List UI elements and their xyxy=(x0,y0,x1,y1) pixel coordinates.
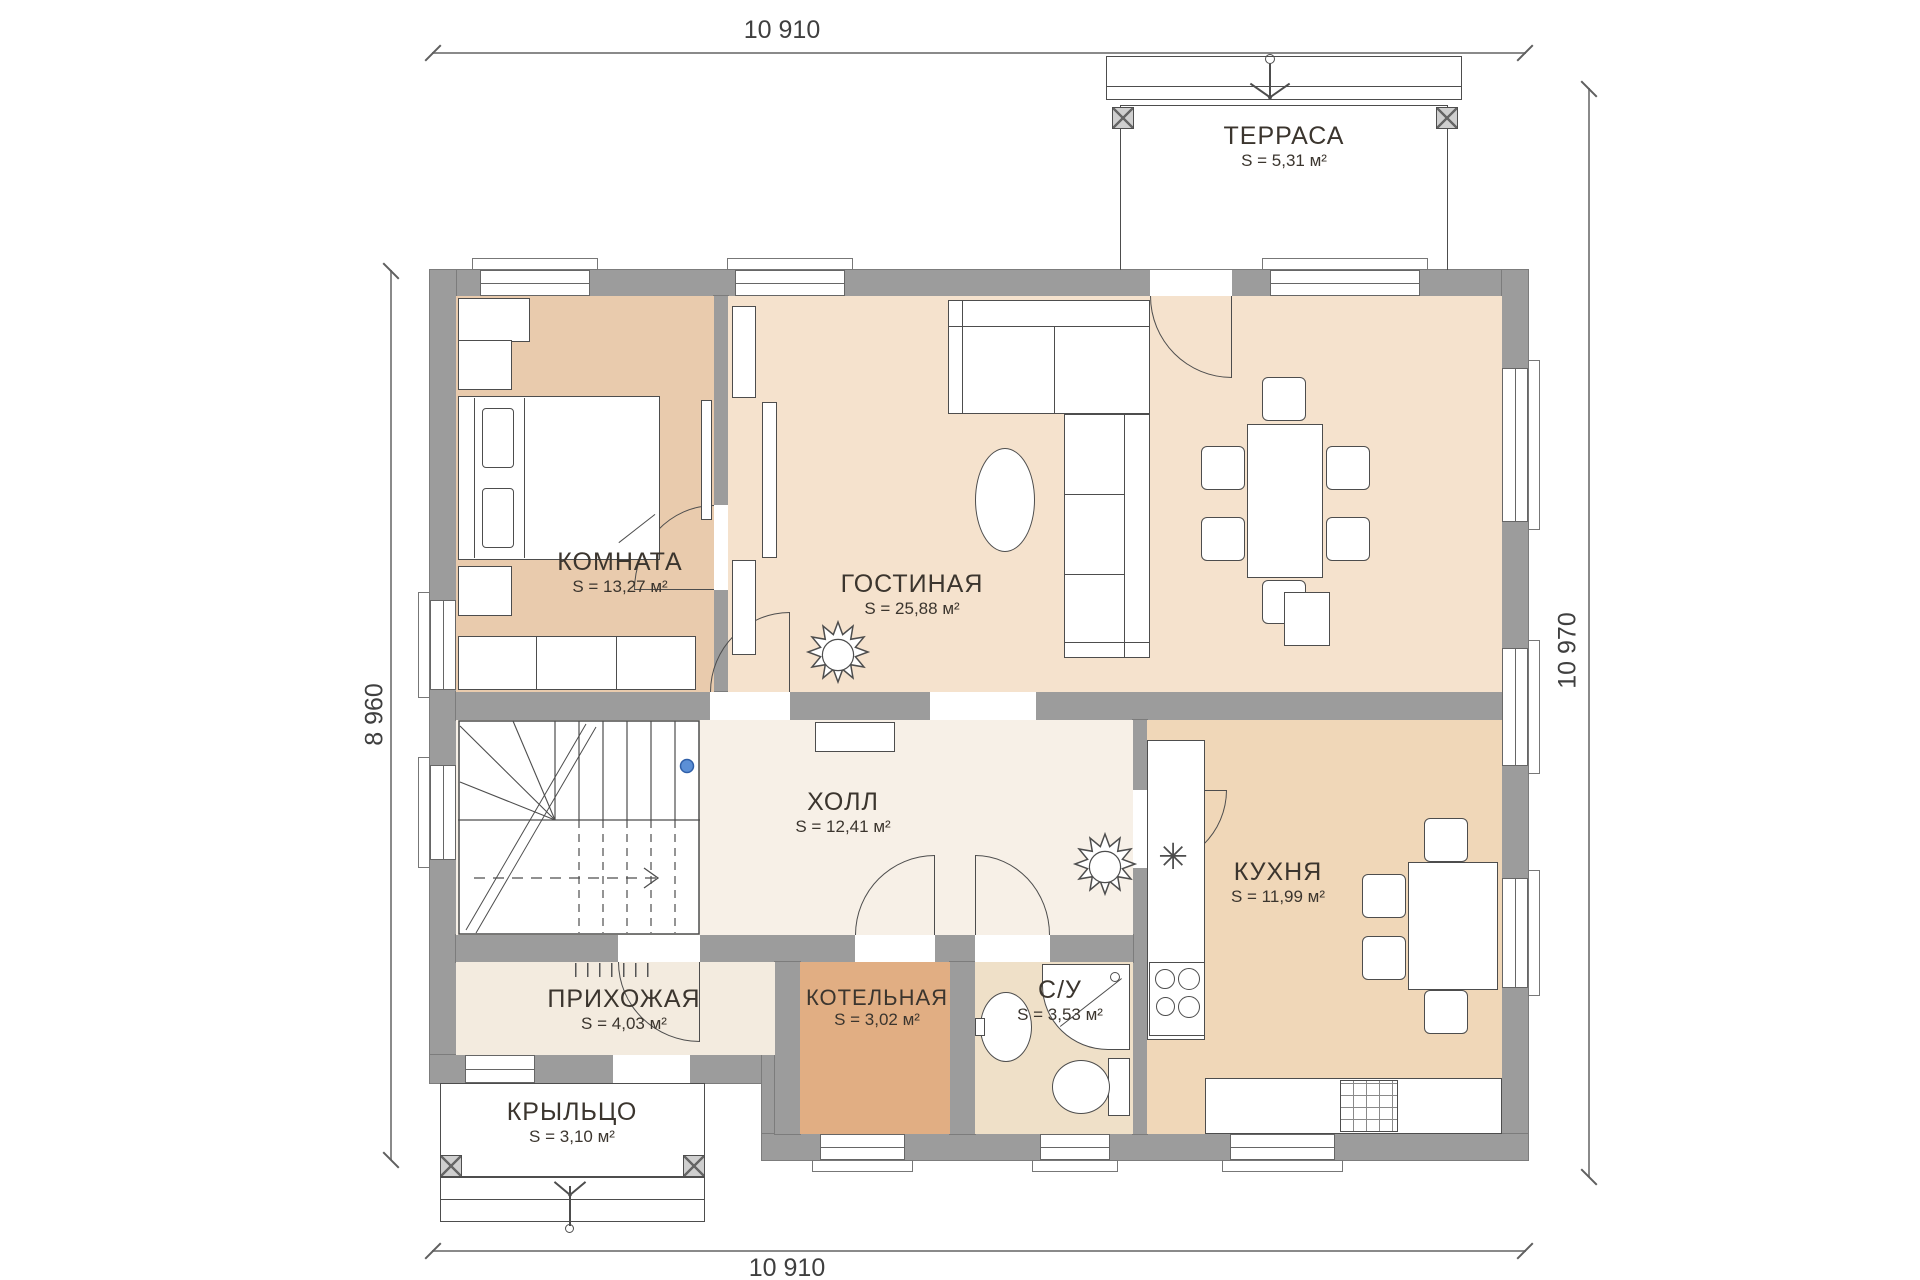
plant-icon xyxy=(808,622,868,682)
washbasin-tap xyxy=(975,1018,985,1036)
window-sill xyxy=(418,757,430,868)
room-area: S = 11,99 м² xyxy=(1231,887,1325,907)
door-opening-bath xyxy=(975,935,1050,962)
chair xyxy=(1326,446,1370,490)
window xyxy=(430,765,456,860)
chair xyxy=(1424,990,1468,1034)
door-opening-boiler xyxy=(855,935,935,962)
room-label-bath: С/У S = 3,53 м² xyxy=(1017,976,1103,1024)
coffee-table xyxy=(975,448,1035,552)
dimension-line-left xyxy=(390,270,392,1160)
sofa-line xyxy=(1124,414,1125,658)
window xyxy=(465,1055,535,1083)
sofa-corner-top xyxy=(948,300,1150,414)
window xyxy=(1040,1134,1110,1160)
tv-cabinet xyxy=(732,560,756,655)
porch-post xyxy=(440,1155,462,1177)
dimension-label-top: 10 910 xyxy=(712,16,852,45)
porch-step-line xyxy=(440,1199,705,1200)
chair xyxy=(1262,377,1306,421)
window xyxy=(480,270,590,296)
chair xyxy=(1362,936,1406,980)
room-area: S = 3,53 м² xyxy=(1017,1005,1103,1025)
dimension-line-top xyxy=(432,52,1526,54)
toilet-tank xyxy=(1108,1058,1130,1116)
sofa-line xyxy=(1064,574,1124,575)
tv-panel xyxy=(701,400,712,520)
kitchen-table xyxy=(1408,862,1498,990)
wardrobe xyxy=(458,636,696,690)
room-area: S = 12,41 м² xyxy=(795,817,890,837)
sofa-corner-side xyxy=(1064,414,1150,658)
room-area: S = 3,02 м² xyxy=(806,1010,948,1030)
room-name: КУХНЯ xyxy=(1231,858,1325,887)
room-label-entry: ПРИХОЖАЯ S = 4,03 м² xyxy=(547,985,700,1033)
plant-icon xyxy=(1075,834,1135,894)
toilet-bowl xyxy=(1052,1060,1110,1114)
nightstand xyxy=(458,340,512,390)
window-sill xyxy=(1222,1160,1343,1172)
chair xyxy=(1201,517,1245,561)
room-name: КОТЕЛЬНАЯ xyxy=(806,985,948,1010)
tv-panel xyxy=(762,402,777,558)
window-sill xyxy=(812,1160,913,1172)
terrace-post xyxy=(1112,107,1134,129)
window-sill xyxy=(472,258,598,270)
window xyxy=(820,1134,905,1160)
room-label-boiler: КОТЕЛЬНАЯ S = 3,02 м² xyxy=(806,985,948,1030)
chair xyxy=(1424,818,1468,862)
wardrobe-divider xyxy=(536,636,537,690)
doormat xyxy=(575,963,651,977)
sofa-line xyxy=(948,326,1150,327)
slope-arrow-icon xyxy=(1265,54,1275,64)
terrace-roof xyxy=(1106,56,1462,100)
sideboard xyxy=(1284,592,1330,646)
nightstand xyxy=(458,566,512,616)
door-opening-bedroom xyxy=(714,505,728,590)
room-name: ХОЛЛ xyxy=(795,788,890,817)
appliance xyxy=(1340,1080,1398,1132)
room-label-kitchen: КУХНЯ S = 11,99 м² xyxy=(1231,858,1325,906)
wall-bedroom-living xyxy=(714,296,728,692)
window xyxy=(1502,878,1528,988)
window-sill xyxy=(1528,870,1540,996)
room-area: S = 3,10 м² xyxy=(507,1127,638,1147)
sofa-line xyxy=(962,300,963,414)
window-sill xyxy=(418,592,430,698)
floor-plan: 10 910 10 910 8 960 10 970 xyxy=(0,0,1920,1280)
closet xyxy=(458,298,530,342)
wall-entry-boiler xyxy=(775,962,800,1134)
window xyxy=(735,270,845,296)
chair xyxy=(1362,874,1406,918)
dimension-line-right xyxy=(1588,88,1590,1177)
window xyxy=(1230,1134,1335,1160)
window-sill xyxy=(1032,1160,1118,1172)
staircase xyxy=(458,720,700,935)
porch-post xyxy=(683,1155,705,1177)
sofa-line xyxy=(1054,326,1055,414)
entry-arrow-origin xyxy=(565,1224,574,1233)
window xyxy=(1502,648,1528,766)
bed-pillow xyxy=(482,488,514,548)
dimension-label-right: 10 970 xyxy=(1554,606,1583,696)
stove xyxy=(1149,962,1205,1036)
window-sill xyxy=(1528,360,1540,530)
sofa-line xyxy=(1064,494,1124,495)
tv-cabinet xyxy=(732,306,756,398)
sofa-line xyxy=(1064,642,1150,643)
room-area: S = 5,31 м² xyxy=(1224,151,1345,171)
terrace-post xyxy=(1436,107,1458,129)
room-label-hall: ХОЛЛ S = 12,41 м² xyxy=(795,788,890,836)
room-area: S = 4,03 м² xyxy=(547,1014,700,1034)
room-name: КОМНАТА xyxy=(557,548,682,577)
window xyxy=(1502,368,1528,522)
window xyxy=(430,600,456,690)
room-area: S = 25,88 м² xyxy=(841,599,984,619)
room-label-bedroom: КОМНАТА S = 13,27 м² xyxy=(557,548,682,596)
wall-hall-kitchen xyxy=(1133,720,1147,1134)
dimension-label-left: 8 960 xyxy=(361,670,390,760)
sink-icon: ✳ xyxy=(1158,836,1188,878)
room-name: С/У xyxy=(1017,976,1103,1005)
console-table xyxy=(815,722,895,752)
window-sill xyxy=(1528,640,1540,774)
room-name: КРЫЛЬЦО xyxy=(507,1098,638,1127)
stair-marker-dot xyxy=(681,760,694,773)
room-name: ГОСТИНАЯ xyxy=(841,570,984,599)
room-name: ПРИХОЖАЯ xyxy=(547,985,700,1014)
wall-boiler-bath xyxy=(950,962,975,1134)
bed-headboard xyxy=(474,398,475,558)
wardrobe-divider xyxy=(616,636,617,690)
door-opening-living xyxy=(710,692,790,720)
door-opening-entry xyxy=(618,935,700,962)
room-label-terrace: ТЕРРАСА S = 5,31 м² xyxy=(1224,122,1345,170)
shower-drain xyxy=(1110,972,1120,982)
room-name: ТЕРРАСА xyxy=(1224,122,1345,151)
door-opening-kitchen xyxy=(1133,790,1147,868)
door-opening-terrace xyxy=(1150,270,1232,296)
bed-blanket-line xyxy=(524,398,525,558)
room-label-living: ГОСТИНАЯ S = 25,88 м² xyxy=(841,570,984,618)
room-label-porch: КРЫЛЬЦО S = 3,10 м² xyxy=(507,1098,638,1146)
window xyxy=(1270,270,1420,296)
window-sill xyxy=(727,258,853,270)
passage-living-hall xyxy=(930,692,1036,720)
room-area: S = 13,27 м² xyxy=(557,577,682,597)
dimension-line-bottom xyxy=(432,1250,1526,1252)
dining-table xyxy=(1247,424,1323,578)
chair xyxy=(1201,446,1245,490)
door-opening-porch xyxy=(613,1055,690,1083)
dimension-label-bottom: 10 910 xyxy=(717,1254,857,1280)
chair xyxy=(1326,517,1370,561)
bed-pillow xyxy=(482,408,514,468)
